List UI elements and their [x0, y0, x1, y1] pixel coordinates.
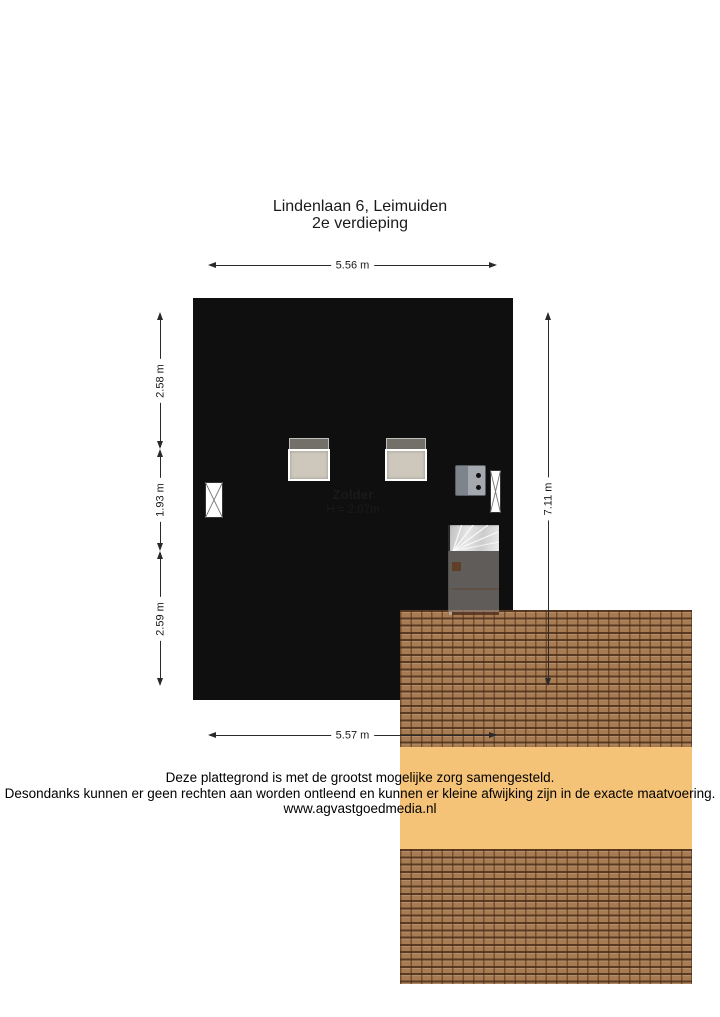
dimension-bottom: 5.57 m: [208, 729, 497, 742]
staircase-landing: [448, 525, 499, 551]
dimension-label: 5.57 m: [331, 729, 375, 742]
floorplan-page: Lindenlaan 6, Leimuiden 2e verdieping 5.…: [0, 0, 720, 1017]
page-title: Lindenlaan 6, Leimuiden 2e verdieping: [0, 198, 720, 232]
arrow-down-icon: [157, 441, 163, 449]
disclaimer: Deze plattegrond is met de grootst mogel…: [0, 770, 720, 817]
title-floor: 2e verdieping: [0, 215, 720, 232]
arrow-up-icon: [157, 312, 163, 320]
arrow-down-icon: [157, 543, 163, 551]
dimension-label: 2.58 m: [154, 359, 167, 403]
skylight-body: [385, 449, 427, 481]
arrow-up-icon: [157, 449, 163, 457]
dimension-left-bottom: 2.59 m: [154, 551, 167, 686]
room-name: Zolder: [207, 487, 499, 502]
title-address: Lindenlaan 6, Leimuiden: [0, 198, 720, 215]
arrow-down-icon: [157, 678, 163, 686]
arrow-right-icon: [489, 262, 497, 268]
skylight-body: [288, 449, 330, 481]
room-height: H = 2.07m: [207, 504, 499, 516]
roof-area-bottom: [400, 849, 692, 984]
skylight-left: [288, 438, 330, 481]
skylight-right: [385, 438, 427, 481]
dimension-label: 5.56 m: [331, 259, 375, 272]
staircase-wall: [448, 518, 499, 525]
stair-treads-icon: [450, 525, 499, 551]
dimension-label: 7.11 m: [542, 478, 555, 521]
dimension-right: 7.11 m: [542, 312, 555, 686]
arrow-up-icon: [157, 551, 163, 559]
room-label: Zolder H = 2.07m: [207, 487, 499, 516]
staircase-lower-flight: [448, 551, 499, 615]
stair-step-line: [452, 588, 499, 590]
website-url: www.agvastgoedmedia.nl: [0, 801, 720, 817]
dimension-left-middle: 1.93 m: [154, 449, 167, 551]
boiler-knob-icon: [476, 473, 481, 478]
arrow-left-icon: [208, 732, 216, 738]
disclaimer-line1: Deze plattegrond is met de grootst mogel…: [0, 770, 720, 786]
arrow-down-icon: [545, 678, 551, 686]
dimension-label: 1.93 m: [154, 478, 167, 522]
stair-newel-post: [452, 562, 461, 571]
arrow-right-icon: [489, 732, 497, 738]
dimension-top: 5.56 m: [208, 259, 497, 272]
arrow-left-icon: [208, 262, 216, 268]
arrow-up-icon: [545, 312, 551, 320]
stair-bottom-edge: [452, 612, 499, 615]
dimension-left-top: 2.58 m: [154, 312, 167, 449]
dimension-label: 2.59 m: [154, 597, 167, 641]
disclaimer-line2: Desondanks kunnen er geen rechten aan wo…: [0, 786, 720, 802]
